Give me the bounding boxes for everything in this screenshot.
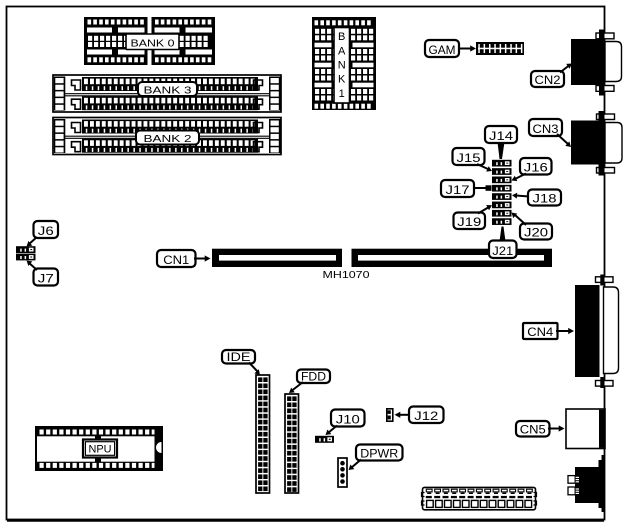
svg-text:CN5: CN5 bbox=[520, 425, 546, 437]
svg-text:A: A bbox=[338, 46, 346, 58]
svg-text:MH1070: MH1070 bbox=[323, 270, 371, 281]
svg-text:J21: J21 bbox=[492, 246, 513, 258]
svg-text:CN4: CN4 bbox=[527, 327, 554, 339]
svg-text:J14: J14 bbox=[489, 131, 514, 143]
svg-text:B: B bbox=[338, 31, 345, 43]
svg-text:J7: J7 bbox=[38, 273, 54, 285]
svg-text:N: N bbox=[338, 60, 346, 72]
svg-text:1: 1 bbox=[339, 88, 345, 100]
svg-text:IDE: IDE bbox=[227, 352, 251, 364]
svg-text:DPWR: DPWR bbox=[360, 449, 398, 461]
svg-text:J18: J18 bbox=[533, 194, 557, 206]
svg-text:J19: J19 bbox=[457, 217, 481, 229]
svg-text:GAM: GAM bbox=[429, 45, 456, 57]
svg-text:CN1: CN1 bbox=[163, 255, 189, 267]
svg-text:FDD: FDD bbox=[301, 372, 326, 384]
svg-text:J6: J6 bbox=[38, 226, 54, 238]
svg-text:J20: J20 bbox=[524, 228, 548, 240]
svg-text:NPU: NPU bbox=[89, 443, 112, 455]
svg-text:J12: J12 bbox=[414, 411, 438, 423]
svg-text:CN2: CN2 bbox=[535, 75, 561, 87]
svg-text:J16: J16 bbox=[524, 163, 548, 175]
svg-text:BANK 0: BANK 0 bbox=[131, 39, 176, 50]
svg-text:J10: J10 bbox=[336, 414, 360, 426]
svg-text:K: K bbox=[338, 74, 346, 86]
svg-text:J17: J17 bbox=[446, 185, 470, 197]
svg-text:CN3: CN3 bbox=[533, 124, 559, 136]
svg-text:BANK 2: BANK 2 bbox=[144, 133, 192, 145]
svg-text:BANK 3: BANK 3 bbox=[144, 85, 192, 97]
svg-text:J15: J15 bbox=[457, 153, 481, 165]
